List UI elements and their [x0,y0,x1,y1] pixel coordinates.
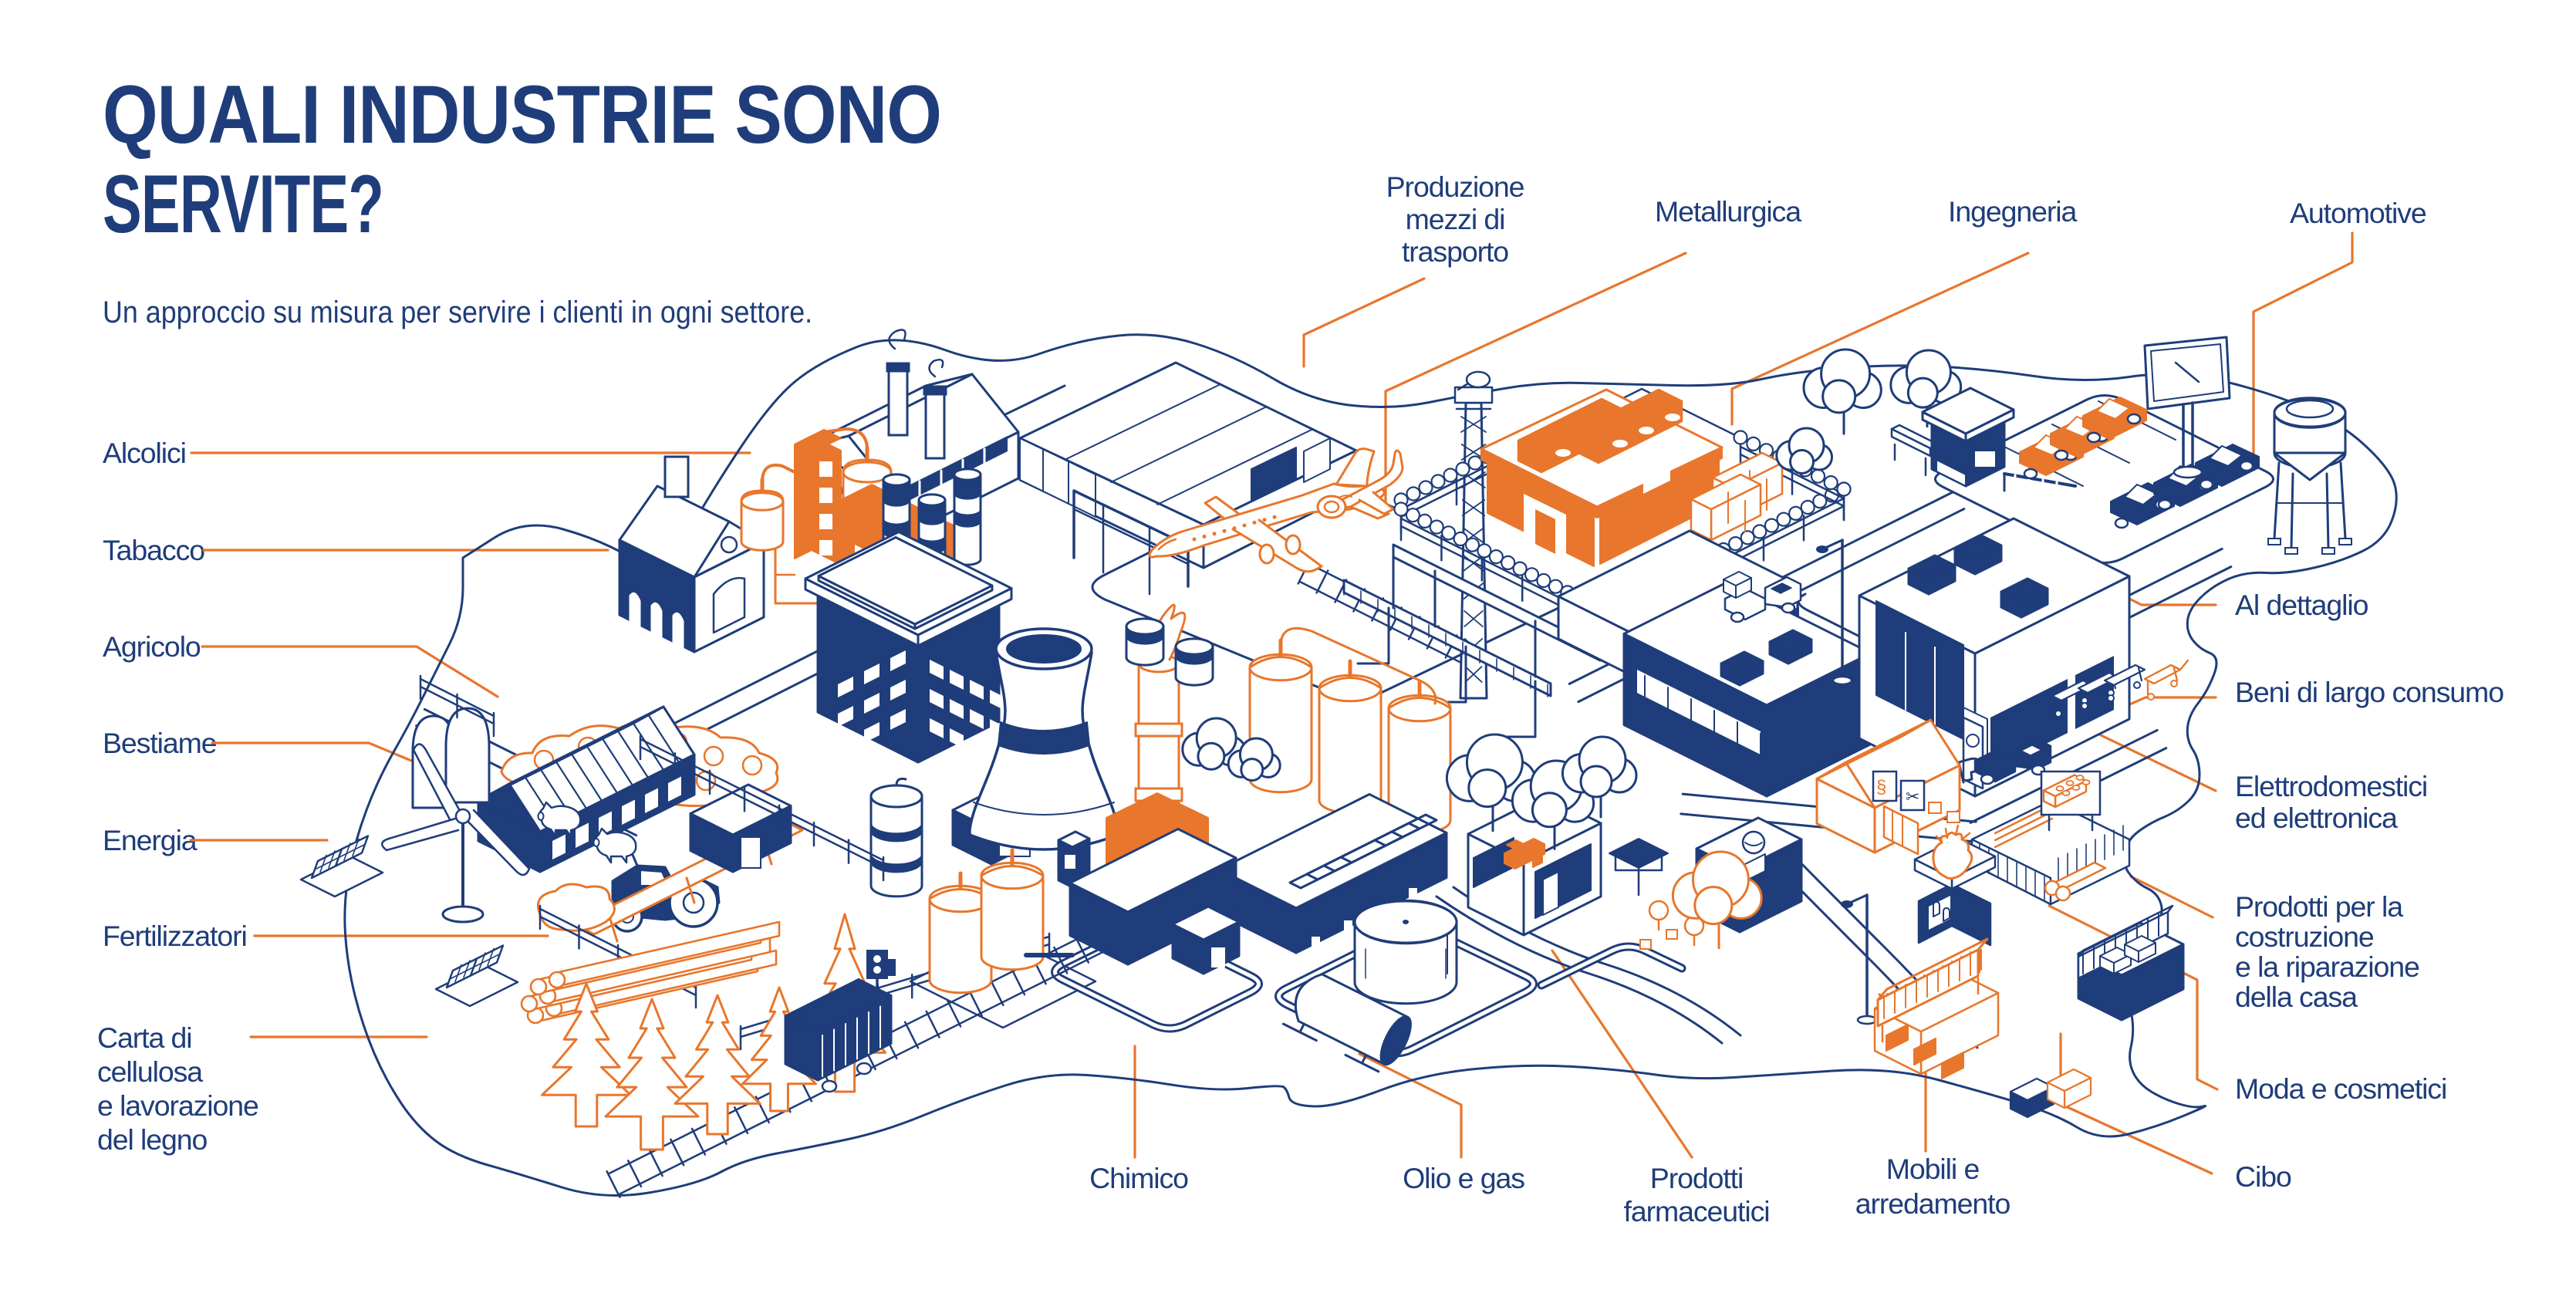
svg-text:trasporto: trasporto [1402,235,1508,268]
svg-text:Prodotti per la: Prodotti per la [2235,890,2403,923]
svg-text:Al dettaglio: Al dettaglio [2235,589,2368,621]
svg-text:Chimico: Chimico [1089,1162,1188,1194]
svg-text:Produzione: Produzione [1386,171,1524,203]
svg-text:Olio e gas: Olio e gas [1403,1162,1524,1194]
svg-text:Carta di: Carta di [97,1021,192,1054]
svg-text:Mobili e: Mobili e [1886,1153,1980,1185]
svg-text:Un approccio su misura per ser: Un approccio su misura per servire i cli… [103,295,812,329]
svg-text:Prodotti: Prodotti [1650,1162,1743,1194]
svg-text:Ingegneria: Ingegneria [1948,195,2077,228]
svg-text:Bestiame: Bestiame [103,727,217,759]
svg-text:Elettrodomestici: Elettrodomestici [2235,770,2427,802]
svg-text:Tabacco: Tabacco [103,534,204,566]
svg-text:SERVITE?: SERVITE? [103,157,383,250]
svg-text:costruzione: costruzione [2235,920,2374,953]
svg-text:Moda e cosmetici: Moda e cosmetici [2235,1072,2446,1105]
svg-text:Agricolo: Agricolo [103,630,201,663]
svg-text:Alcolici: Alcolici [103,437,186,469]
svg-text:Energia: Energia [103,824,198,856]
svg-text:della casa: della casa [2235,981,2358,1013]
svg-text:mezzi di: mezzi di [1406,203,1505,235]
svg-text:ed elettronica: ed elettronica [2235,802,2398,834]
svg-text:Fertilizzatori: Fertilizzatori [103,920,247,952]
svg-text:farmaceutici: farmaceutici [1624,1195,1770,1227]
svg-text:Cibo: Cibo [2235,1160,2291,1193]
svg-text:e lavorazione: e lavorazione [97,1089,258,1122]
svg-text:e la riparazione: e la riparazione [2235,951,2419,983]
svg-text:Automotive: Automotive [2290,197,2426,229]
svg-text:arredamento: arredamento [1855,1187,2010,1220]
svg-text:Metallurgica: Metallurgica [1655,195,1801,228]
svg-text:cellulosa: cellulosa [97,1055,203,1088]
svg-text:✂: ✂ [1906,787,1919,806]
svg-text:Beni di largo consumo: Beni di largo consumo [2235,676,2503,708]
svg-text:§: § [1876,777,1886,798]
svg-text:del legno: del legno [97,1123,208,1156]
svg-text:QUALI INDUSTRIE SONO: QUALI INDUSTRIE SONO [103,68,941,160]
